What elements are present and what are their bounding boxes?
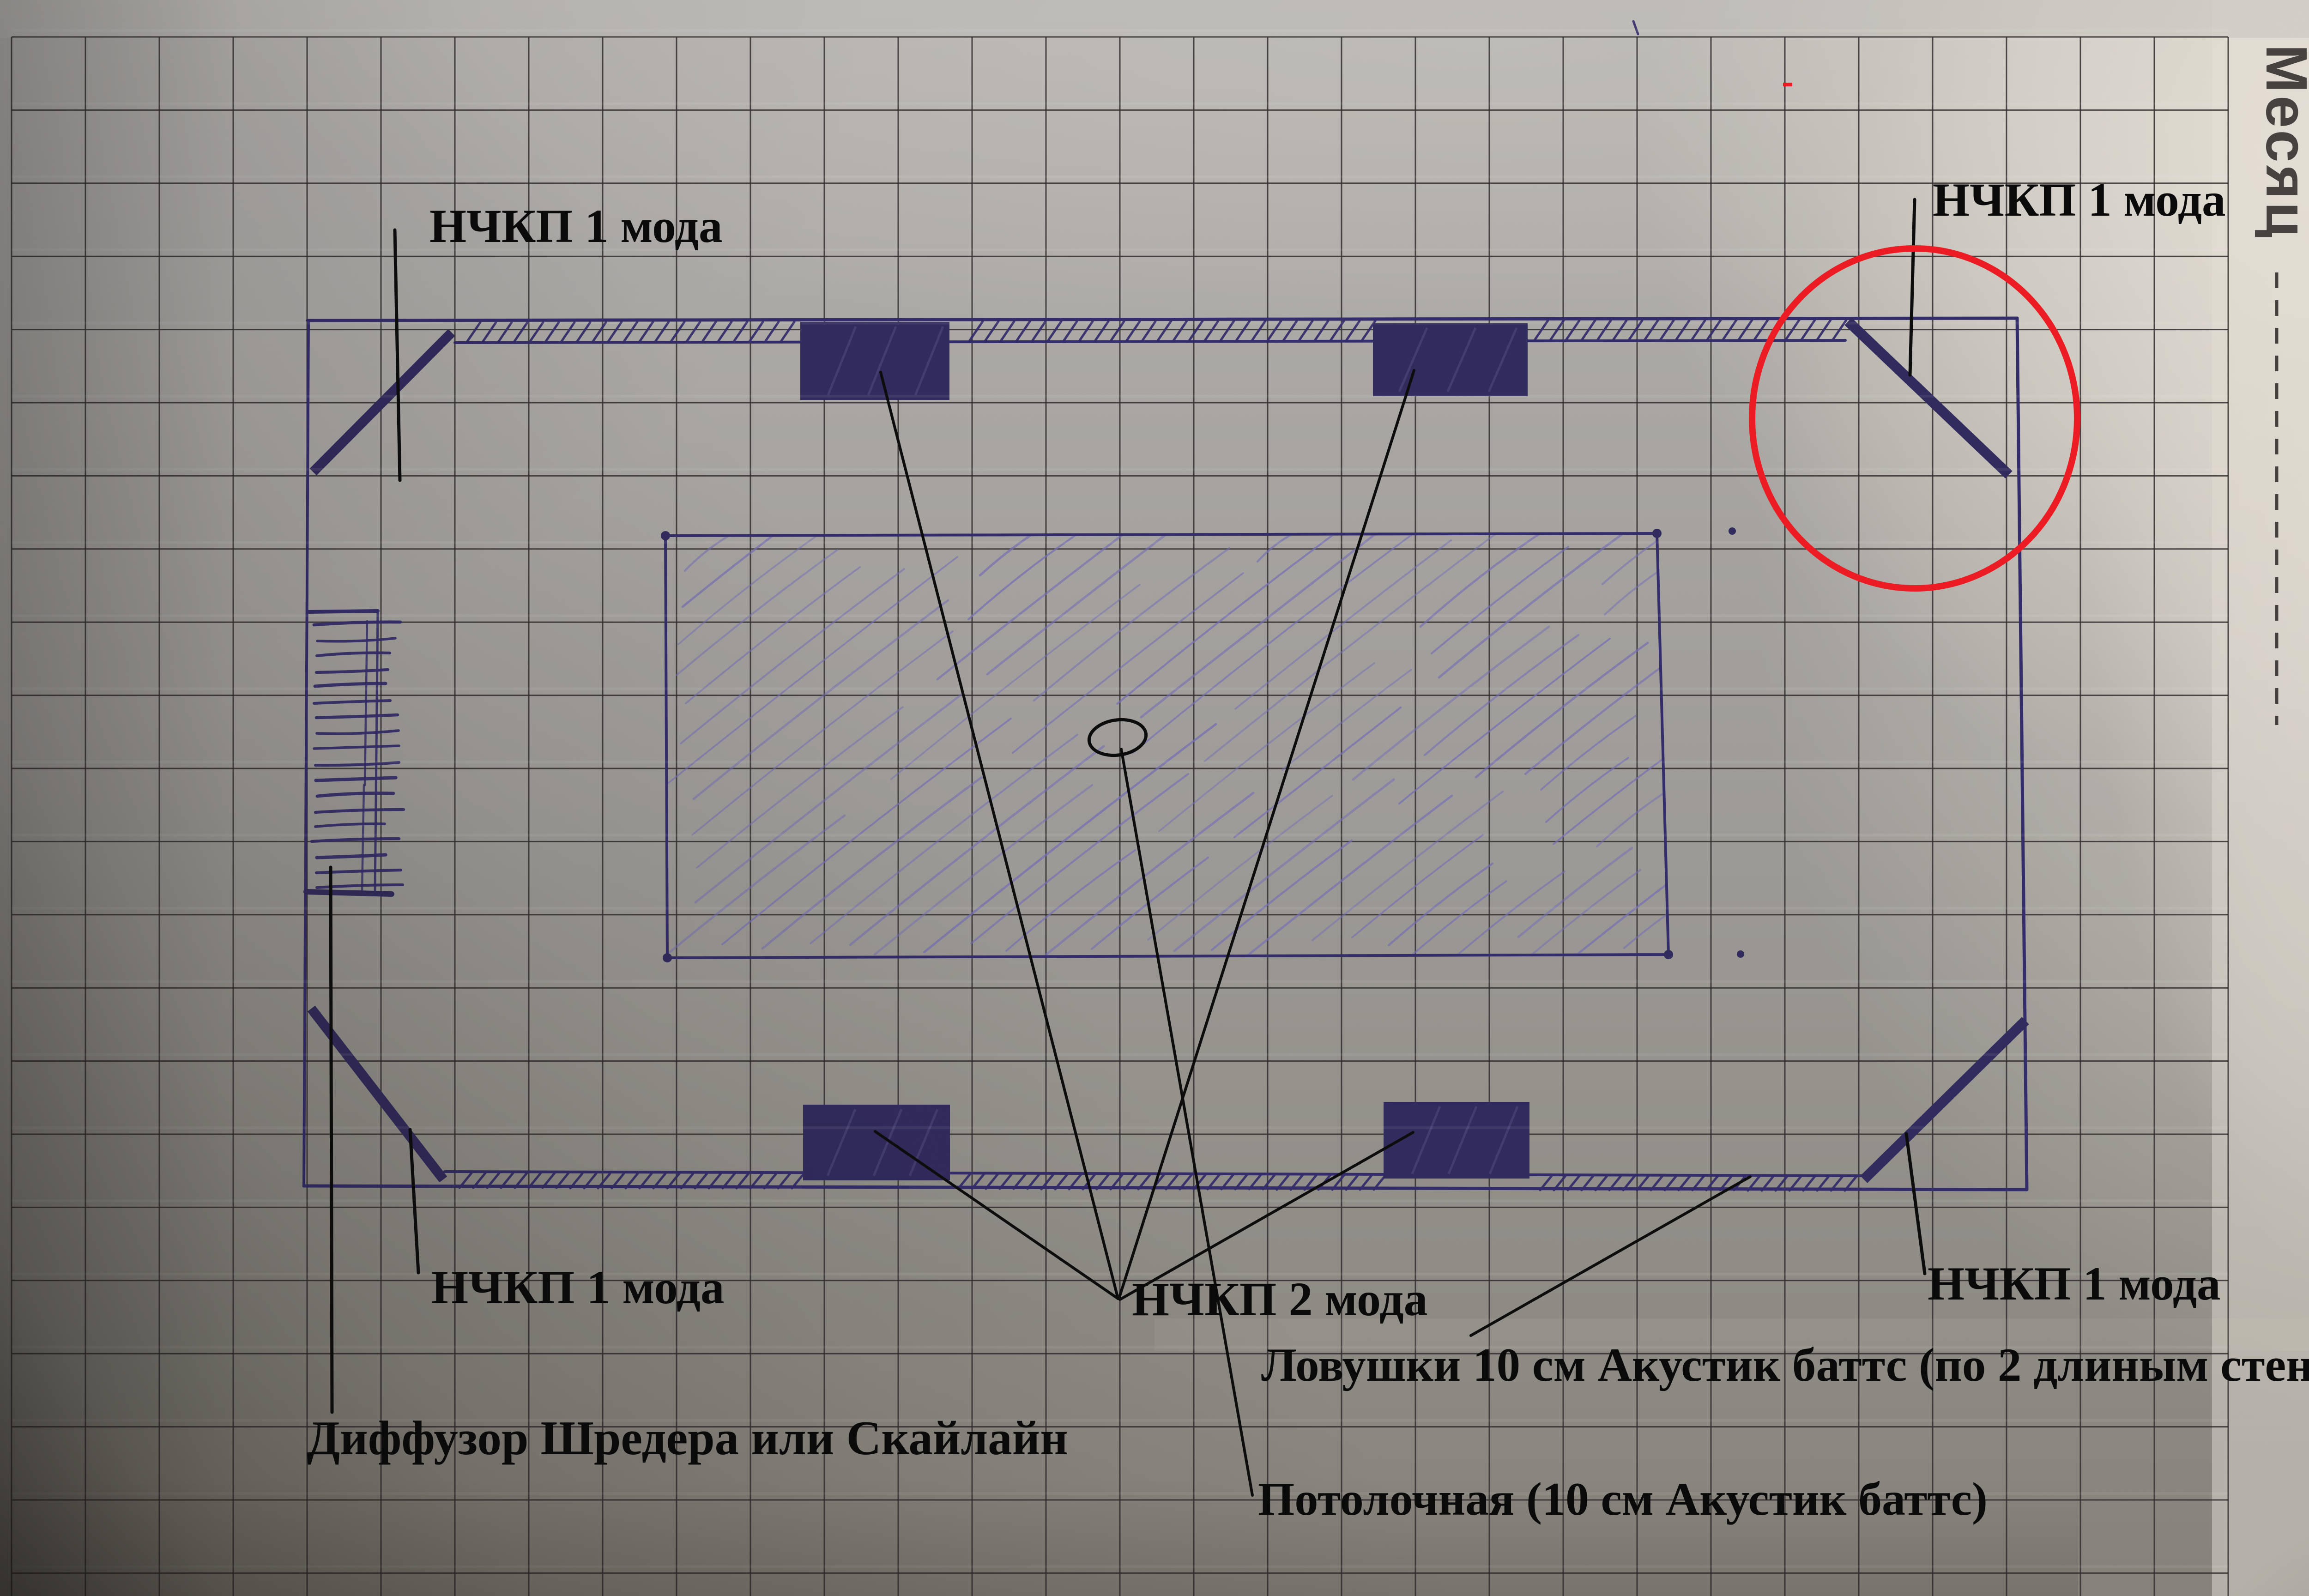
svg-text:Месяц: Месяц [2254,44,2309,240]
svg-text:Диффузор Шредера или Скайлайн: Диффузор Шредера или Скайлайн [307,1411,1068,1465]
svg-text:НЧКП 2 мода: НЧКП 2 мода [1132,1273,1428,1326]
svg-text:НЧКП 1 мода: НЧКП 1 мода [429,200,722,253]
svg-text:Потолочная (10 см Акустик батт: Потолочная (10 см Акустик баттс) [1258,1473,1988,1525]
svg-text:НЧКП 1 мода: НЧКП 1 мода [1933,174,2225,226]
svg-text:Ловушки 10 см Акустик баттс (п: Ловушки 10 см Акустик баттс (по 2 длиным… [1261,1339,2309,1391]
svg-text:НЧКП 1 мода: НЧКП 1 мода [1928,1257,2220,1310]
svg-text:НЧКП 1 мода: НЧКП 1 мода [431,1261,724,1314]
